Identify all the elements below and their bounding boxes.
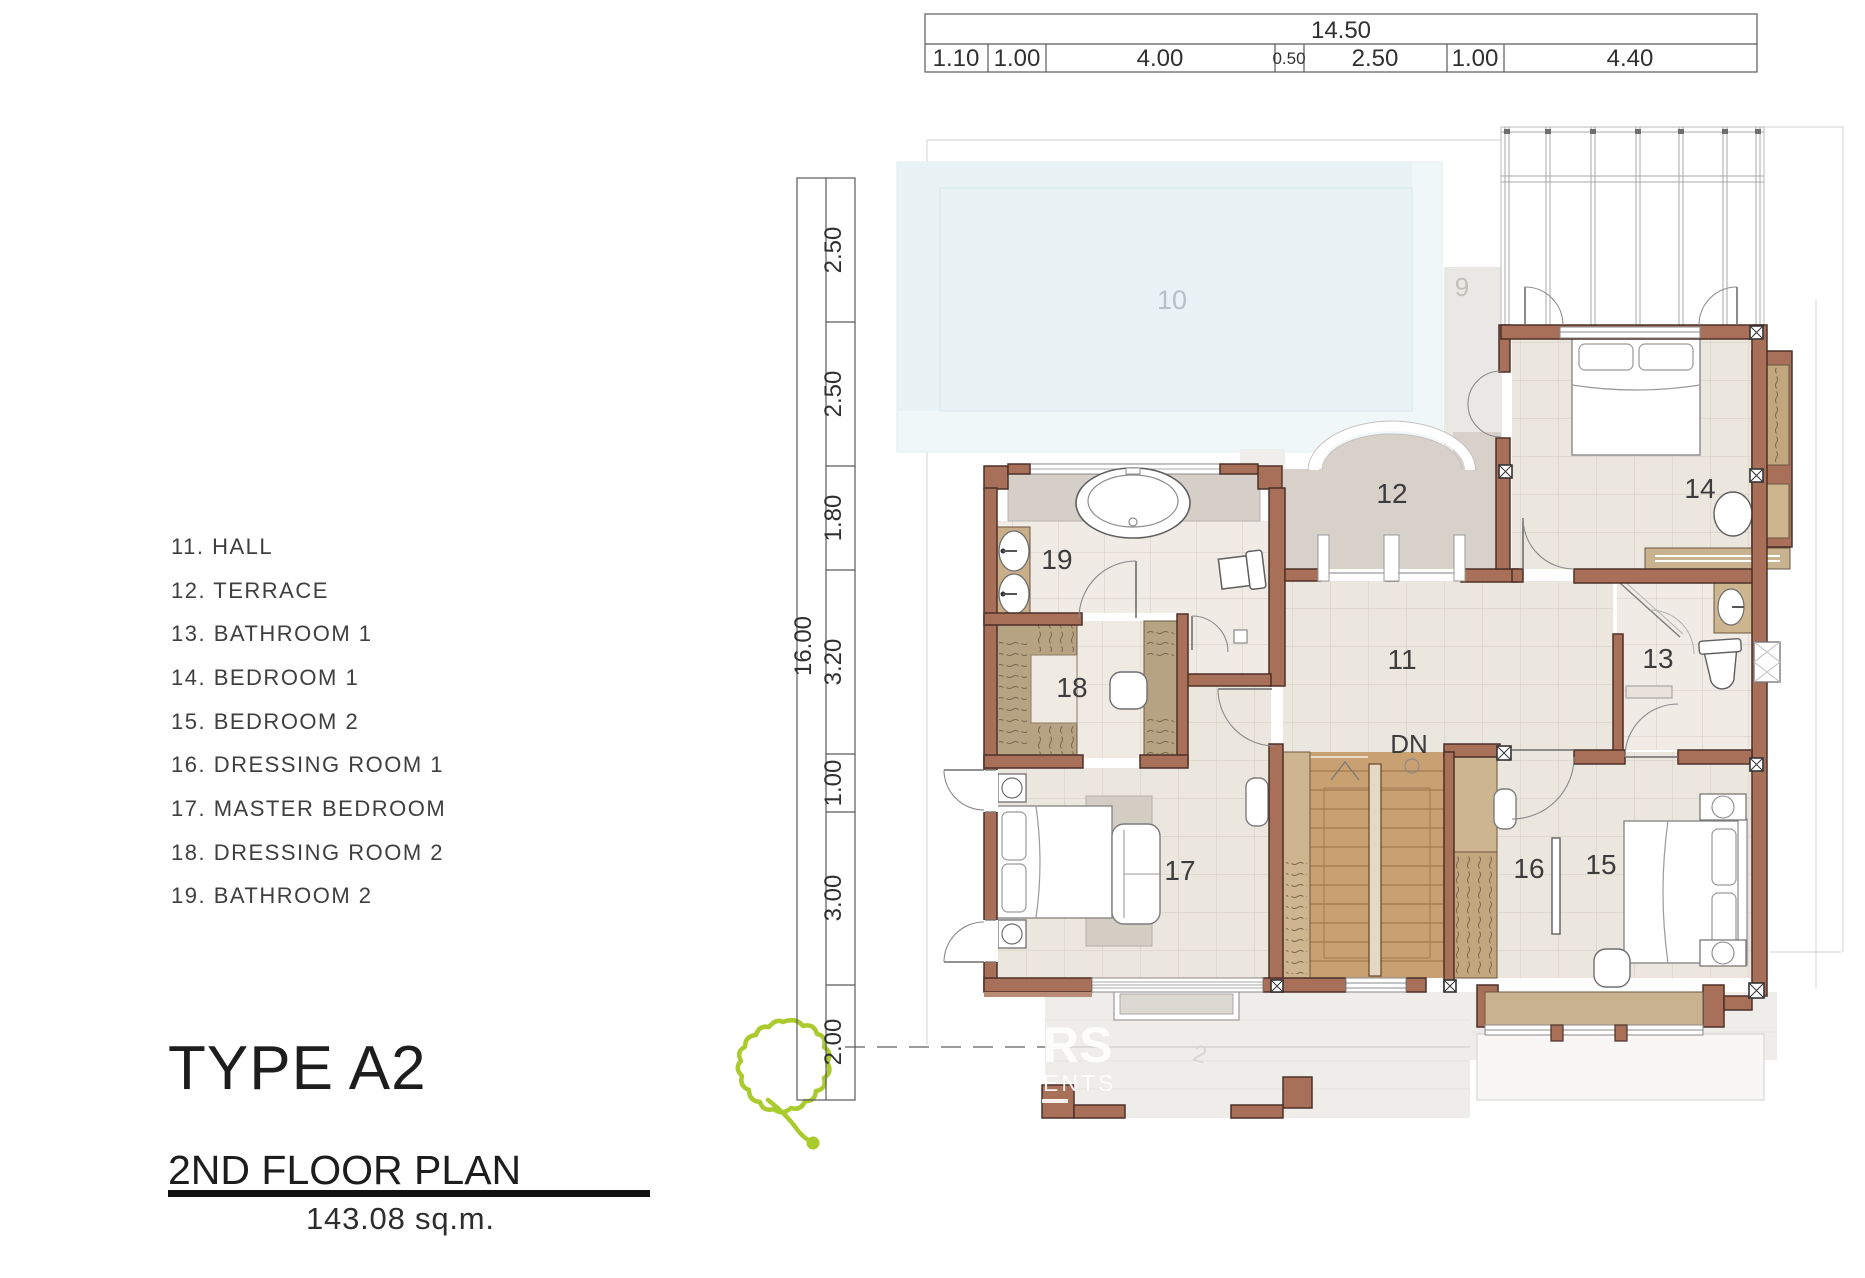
svg-text:10: 10 [1157,285,1187,315]
svg-text:3.20: 3.20 [820,639,847,686]
svg-text:2.50: 2.50 [820,371,847,418]
svg-text:0.50: 0.50 [1272,49,1305,68]
svg-text:17: 17 [1164,855,1195,886]
svg-text:1.00: 1.00 [1452,45,1499,72]
svg-text:12. TERRACE: 12. TERRACE [171,578,329,603]
svg-text:14: 14 [1684,473,1715,504]
svg-text:12: 12 [1376,478,1407,509]
svg-text:RS: RS [1043,1017,1112,1073]
svg-text:16.00: 16.00 [790,616,817,676]
svg-text:13. BATHROOM 1: 13. BATHROOM 1 [171,621,373,646]
svg-text:2.50: 2.50 [1352,45,1399,72]
svg-text:16: 16 [1513,853,1544,884]
svg-text:1.10: 1.10 [933,45,980,72]
svg-text:2.00: 2.00 [820,1019,847,1066]
svg-text:1.00: 1.00 [820,760,847,807]
svg-text:11. HALL: 11. HALL [171,534,273,559]
svg-text:15: 15 [1585,849,1616,880]
svg-text:18. DRESSING ROOM 2: 18. DRESSING ROOM 2 [171,840,444,865]
svg-text:14.50: 14.50 [1311,17,1371,44]
svg-text:1.00: 1.00 [994,45,1041,72]
svg-text:15. BEDROOM 2: 15. BEDROOM 2 [171,709,359,734]
svg-text:2.50: 2.50 [820,227,847,274]
svg-text:17. MASTER BEDROOM: 17. MASTER BEDROOM [171,796,446,821]
svg-text:4.00: 4.00 [1137,45,1184,72]
svg-text:4.40: 4.40 [1607,45,1654,72]
svg-text:9: 9 [1455,272,1469,302]
svg-text:3.00: 3.00 [820,875,847,922]
svg-text:19. BATHROOM 2: 19. BATHROOM 2 [171,883,373,908]
svg-text:14. BEDROOM 1: 14. BEDROOM 1 [171,665,359,690]
svg-text:18: 18 [1056,672,1087,703]
svg-text:TYPE A2: TYPE A2 [168,1034,427,1103]
svg-text:143.08 sq.m.: 143.08 sq.m. [306,1201,495,1236]
svg-text:DN: DN [1390,729,1428,759]
svg-text:1.80: 1.80 [820,495,847,542]
svg-text:ENTS: ENTS [1043,1070,1116,1096]
svg-text:13: 13 [1642,643,1673,674]
svg-text:19: 19 [1041,544,1072,575]
svg-text:16. DRESSING ROOM 1: 16. DRESSING ROOM 1 [171,752,444,777]
svg-text:2ND FLOOR PLAN: 2ND FLOOR PLAN [168,1147,521,1193]
svg-text:11: 11 [1387,644,1416,675]
